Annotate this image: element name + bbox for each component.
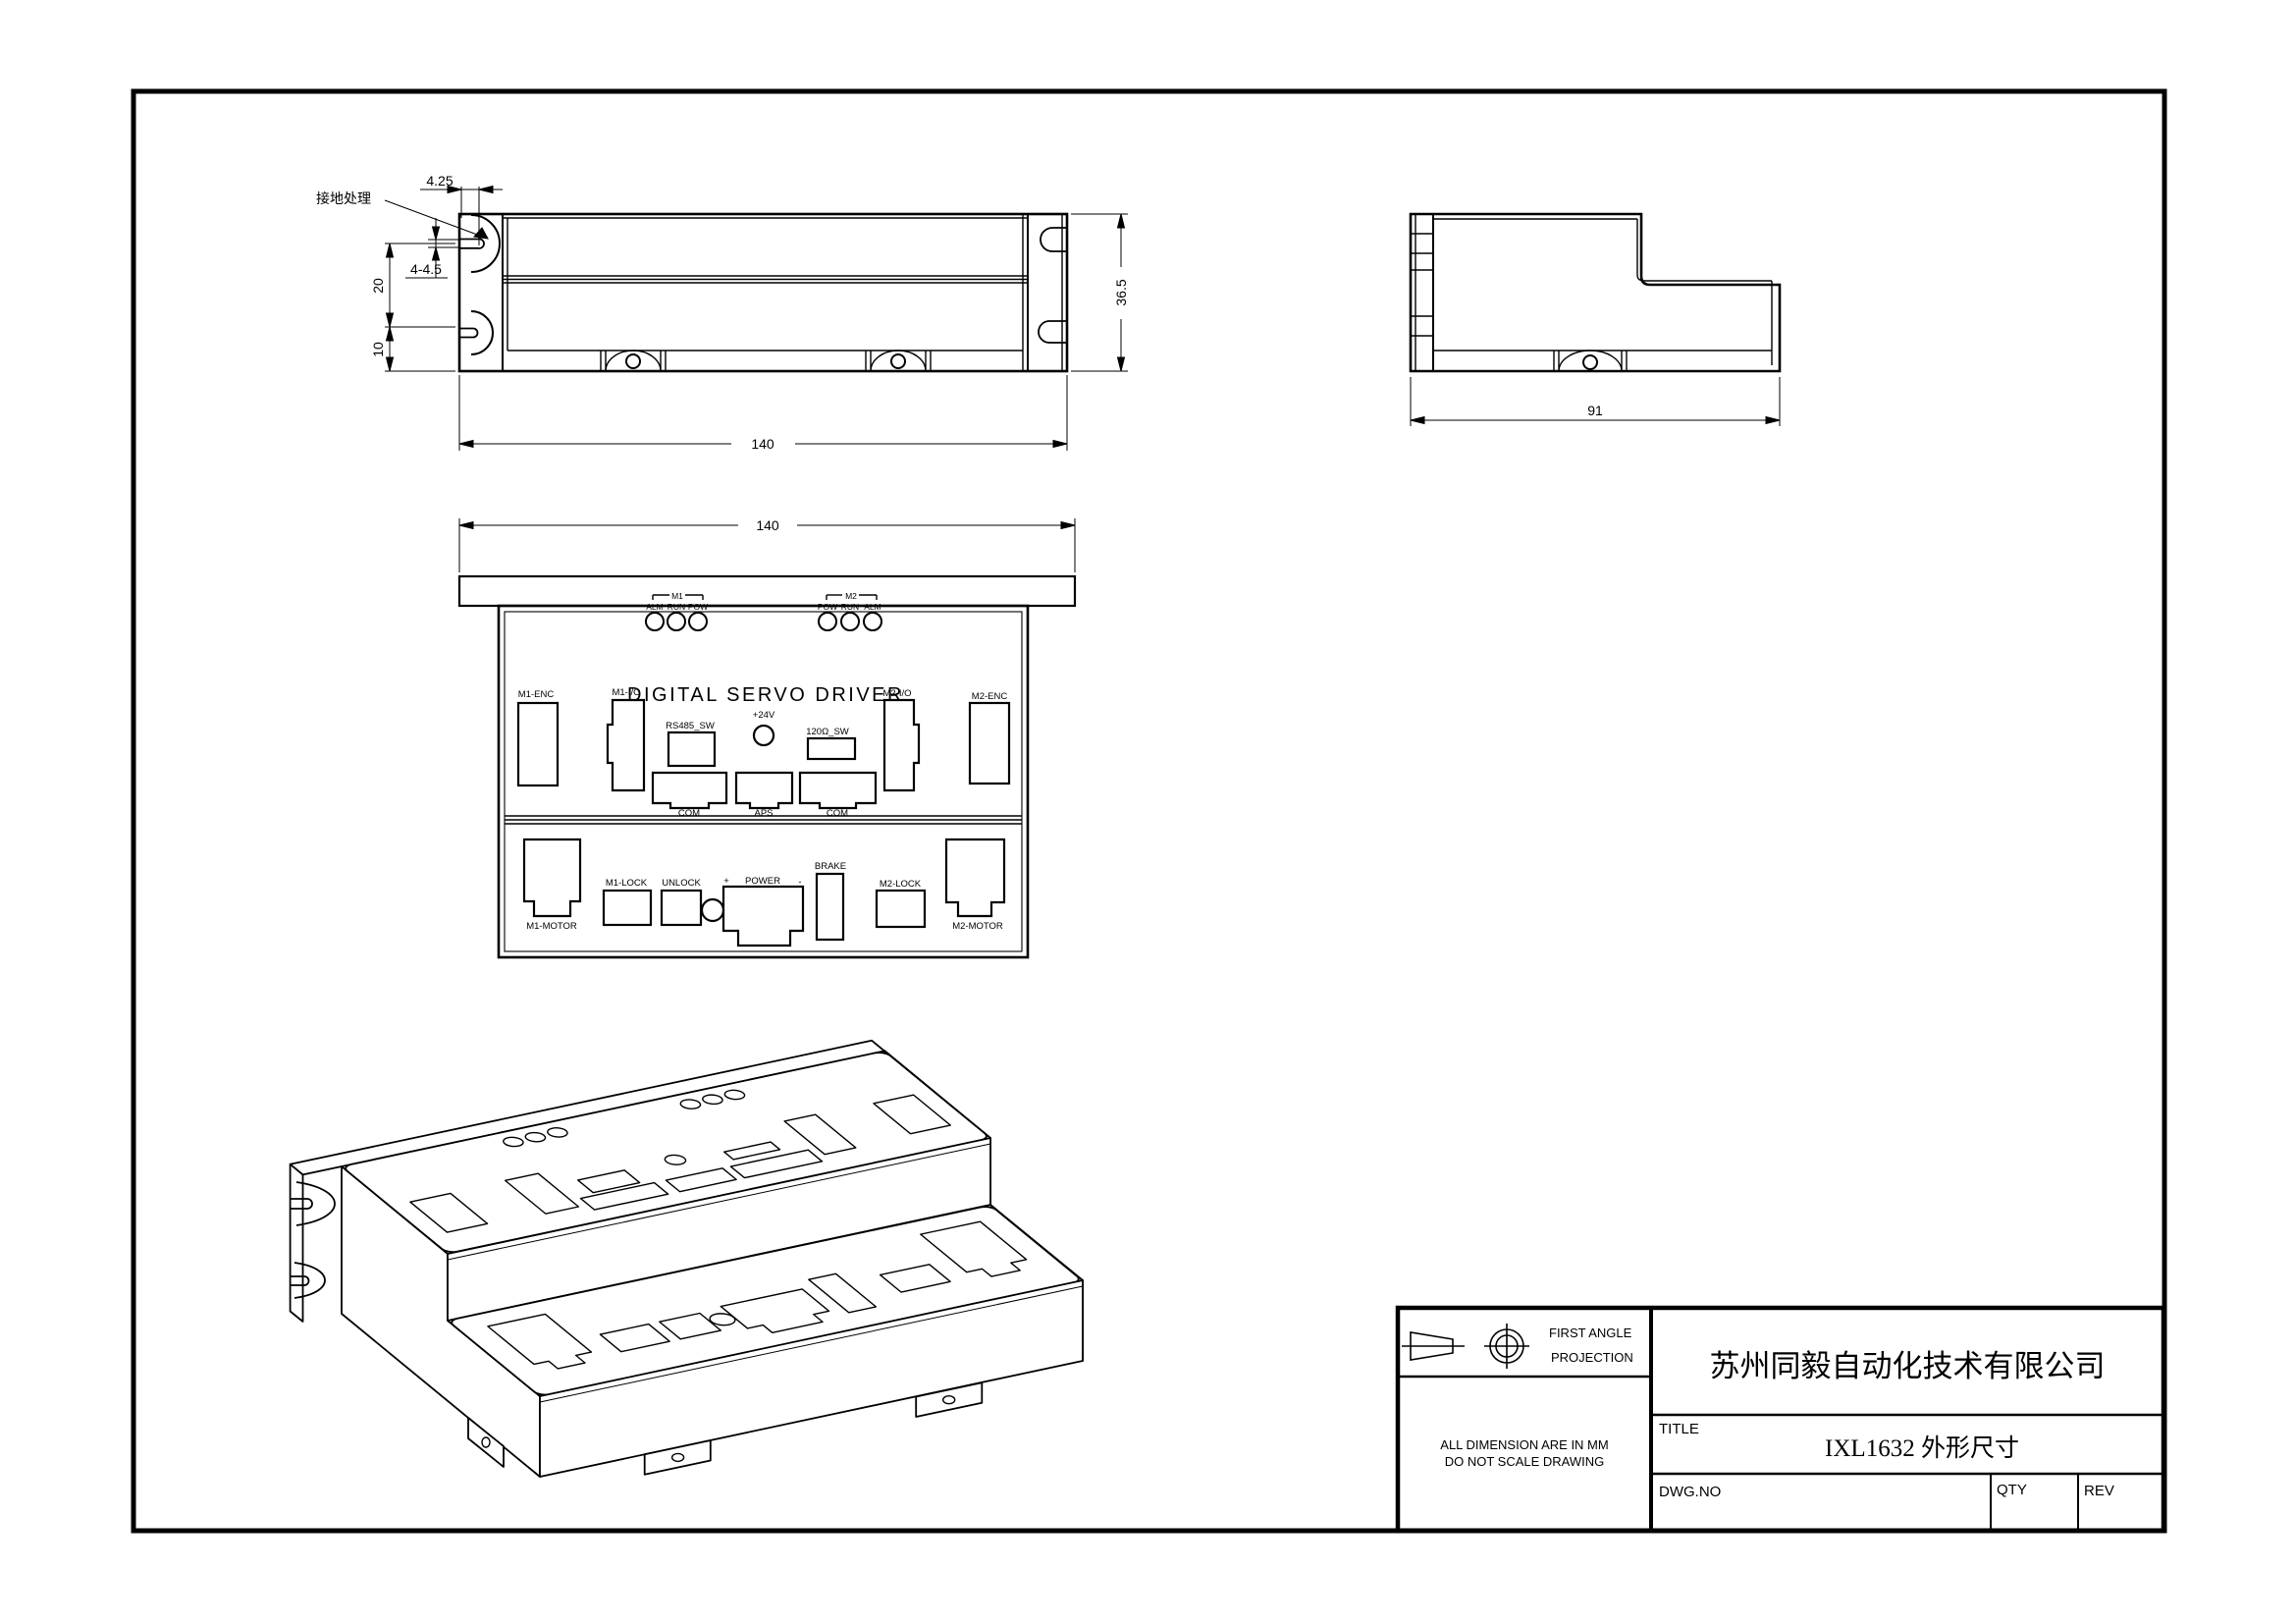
label-aps: APS [754, 808, 773, 819]
led-m1-alm [646, 613, 664, 630]
rev-label: REV [2084, 1483, 2114, 1499]
side-dim-depth: 91 [1587, 403, 1603, 418]
label-m1-motor: M1-MOTOR [526, 921, 577, 932]
label-m1-io: M1-I/O [612, 687, 640, 698]
connector-unlock [662, 891, 701, 925]
connector-m1-io [608, 700, 644, 790]
connector-m2-lock [877, 891, 925, 927]
label-power: POWER [745, 876, 780, 887]
panel-button [702, 899, 723, 921]
screw-hole [891, 354, 905, 368]
label-m2-motor: M2-MOTOR [952, 921, 1003, 932]
front-view [459, 214, 1067, 371]
led-m1-run [667, 613, 685, 630]
projection-label-1: FIRST ANGLE [1549, 1325, 1632, 1340]
led-m2-label-run: RUN [841, 602, 859, 612]
panel-mounting-plate [459, 576, 1075, 606]
connector-m2-motor [946, 839, 1004, 916]
label-com-right: COM [827, 808, 848, 819]
din-hook-top [471, 215, 500, 272]
title-block [1398, 1308, 2163, 1531]
connector-m2-io [884, 700, 919, 790]
label-m1-enc: M1-ENC [518, 689, 555, 700]
led-m2-pow [819, 613, 836, 630]
connector-power [723, 887, 803, 946]
company-name: 苏州同毅自动化技术有限公司 [1710, 1349, 2106, 1383]
note-line-2: DO NOT SCALE DRAWING [1445, 1454, 1605, 1469]
title-label: TITLE [1659, 1421, 1699, 1437]
panel-body [499, 606, 1028, 957]
label-m2-enc: M2-ENC [972, 691, 1008, 702]
front-dim-height: 36.5 [1113, 279, 1129, 305]
panel-dim-width: 140 [756, 517, 779, 533]
label-com-left: COM [678, 808, 700, 819]
label-brake: BRAKE [815, 861, 846, 872]
led-m1-label-pow: POW [688, 602, 708, 612]
connector-rs485-sw [668, 732, 715, 766]
connector-brake [817, 874, 843, 940]
front-view-dimensions [385, 187, 1128, 452]
label-120ohm: 120Ω_SW [806, 727, 849, 737]
projection-symbol [1402, 1324, 1529, 1369]
led-m2-run [841, 613, 859, 630]
qty-label: QTY [1997, 1482, 2027, 1498]
led-m1-pow [689, 613, 707, 630]
front-dim-pitch: 20 [370, 278, 386, 294]
projection-label-2: PROJECTION [1551, 1350, 1633, 1365]
connector-m1-motor [524, 839, 580, 916]
side-view-dimensions [1411, 377, 1780, 426]
connector-m2-enc [970, 703, 1009, 784]
front-dim-edge: 10 [370, 342, 386, 357]
connector-24v [754, 726, 774, 745]
side-view [1411, 214, 1780, 371]
led-m2-alm [864, 613, 881, 630]
led-m2-label-alm: ALM [864, 602, 881, 612]
label-m2-lock: M2-LOCK [880, 879, 922, 890]
din-hook-bottom [471, 311, 493, 354]
led-m1-label-alm: ALM [646, 602, 663, 612]
label-m2-io: M2-I/O [882, 688, 911, 699]
label-unlock: UNLOCK [662, 878, 701, 889]
isometric-view [291, 1041, 1083, 1477]
led-m1-label-run: RUN [667, 602, 685, 612]
connector-com-right [800, 773, 876, 808]
front-dim-width: 140 [751, 436, 774, 452]
connector-com-left [653, 773, 726, 808]
screw-hole [626, 354, 640, 368]
label-power-minus: - [798, 877, 801, 888]
front-ground-label: 接地处理 [316, 190, 371, 206]
led-group-m1-label: M1 [671, 591, 683, 601]
label-24v: +24V [753, 710, 775, 721]
screw-hole [1583, 355, 1597, 369]
note-line-1: ALL DIMENSION ARE IN MM [1440, 1437, 1608, 1452]
front-dim-offset: 4.25 [426, 173, 453, 189]
right-slot-top [1041, 228, 1067, 251]
label-rs485: RS485_SW [666, 721, 715, 731]
panel-title: DIGITAL SERVO DRIVER [627, 684, 904, 706]
drawing-title: IXL1632 外形尺寸 [1825, 1434, 2019, 1462]
label-power-plus: + [723, 876, 729, 887]
led-group-m2-label: M2 [845, 591, 857, 601]
connector-m1-lock [604, 891, 651, 925]
panel-view [459, 576, 1075, 957]
connector-120ohm-sw [808, 738, 855, 759]
drawing-sheet: 接地处理 4.25 4-4.5 20 10 140 36.5 91 [0, 0, 2296, 1623]
connector-aps [736, 773, 792, 808]
connector-m1-enc [518, 703, 558, 785]
dwg-no-label: DWG.NO [1659, 1484, 1721, 1500]
front-dim-slot: 4-4.5 [410, 261, 442, 277]
led-m2-label-pow: POW [818, 602, 837, 612]
label-m1-lock: M1-LOCK [606, 878, 648, 889]
